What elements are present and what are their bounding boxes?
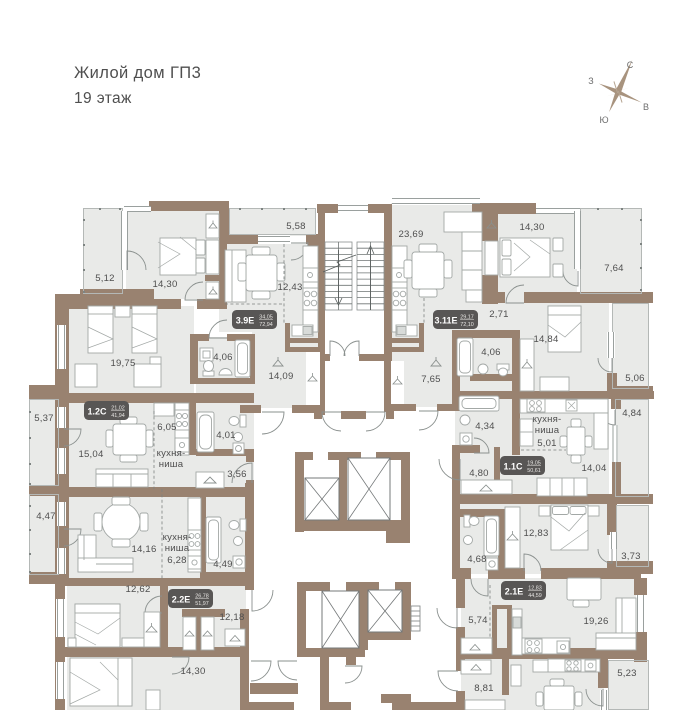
svg-text:Ю: Ю (599, 115, 608, 125)
svg-text:1.1C: 1.1C (503, 462, 523, 472)
svg-text:72,94: 72,94 (259, 322, 273, 328)
svg-text:3,56: 3,56 (227, 469, 246, 480)
svg-text:14,30: 14,30 (152, 279, 177, 290)
svg-text:7,65: 7,65 (421, 374, 440, 385)
svg-text:12,83: 12,83 (523, 528, 548, 539)
svg-text:3.9E: 3.9E (236, 316, 255, 326)
svg-text:14,04: 14,04 (581, 463, 606, 474)
svg-text:8,81: 8,81 (474, 683, 493, 694)
svg-text:50,61: 50,61 (527, 468, 541, 474)
svg-text:кухня-: кухня- (163, 532, 192, 543)
svg-text:4,34: 4,34 (475, 421, 495, 432)
svg-text:5,01: 5,01 (537, 438, 556, 449)
svg-text:44,59: 44,59 (528, 593, 542, 599)
svg-text:кухня-: кухня- (533, 414, 562, 425)
svg-text:З: З (588, 76, 593, 86)
svg-text:2.2E: 2.2E (172, 595, 191, 605)
svg-text:4,80: 4,80 (469, 468, 488, 479)
svg-text:19 этаж: 19 этаж (74, 90, 132, 107)
svg-text:ниша: ниша (159, 459, 184, 470)
svg-text:4,47: 4,47 (36, 511, 55, 522)
svg-text:5,58: 5,58 (286, 221, 305, 232)
svg-text:3,73: 3,73 (621, 551, 640, 562)
svg-text:5,06: 5,06 (625, 373, 644, 384)
svg-text:ниша: ниша (165, 543, 190, 554)
svg-text:19,75: 19,75 (110, 358, 135, 369)
svg-text:14,30: 14,30 (180, 666, 205, 677)
svg-text:4,49: 4,49 (213, 559, 232, 570)
svg-text:С: С (627, 60, 634, 70)
svg-text:72,10: 72,10 (460, 322, 474, 328)
svg-text:4,06: 4,06 (213, 352, 232, 363)
svg-text:14,30: 14,30 (519, 222, 544, 233)
svg-text:В: В (643, 102, 649, 112)
svg-text:12,62: 12,62 (125, 584, 150, 595)
svg-text:ниша: ниша (535, 425, 560, 436)
svg-text:5,37: 5,37 (34, 413, 53, 424)
svg-text:кухня-: кухня- (157, 448, 186, 459)
svg-text:4,68: 4,68 (467, 554, 486, 565)
svg-text:15,04: 15,04 (78, 449, 103, 460)
svg-text:2.1E: 2.1E (505, 587, 524, 597)
svg-text:6,28: 6,28 (167, 555, 186, 566)
svg-text:1.2C: 1.2C (87, 407, 107, 417)
svg-text:4,06: 4,06 (481, 347, 500, 358)
svg-text:5,74: 5,74 (468, 615, 488, 626)
svg-text:4,01: 4,01 (216, 430, 235, 441)
svg-text:19,26: 19,26 (583, 616, 608, 627)
svg-text:5,23: 5,23 (617, 668, 636, 679)
svg-text:14,09: 14,09 (268, 371, 293, 382)
svg-text:12,43: 12,43 (277, 282, 302, 293)
svg-text:23,69: 23,69 (398, 229, 423, 240)
svg-text:12,18: 12,18 (219, 612, 244, 623)
svg-text:41,94: 41,94 (111, 413, 125, 419)
svg-text:14,84: 14,84 (533, 334, 558, 345)
svg-text:14,16: 14,16 (131, 544, 156, 555)
svg-text:4,84: 4,84 (622, 408, 642, 419)
svg-text:7,64: 7,64 (604, 263, 624, 274)
svg-text:51,97: 51,97 (195, 601, 209, 607)
svg-text:6,05: 6,05 (157, 422, 176, 433)
svg-text:5,12: 5,12 (95, 273, 114, 284)
svg-text:3.11E: 3.11E (434, 316, 457, 326)
svg-text:2,71: 2,71 (489, 309, 508, 320)
svg-text:Жилой дом ГП3: Жилой дом ГП3 (74, 64, 201, 82)
